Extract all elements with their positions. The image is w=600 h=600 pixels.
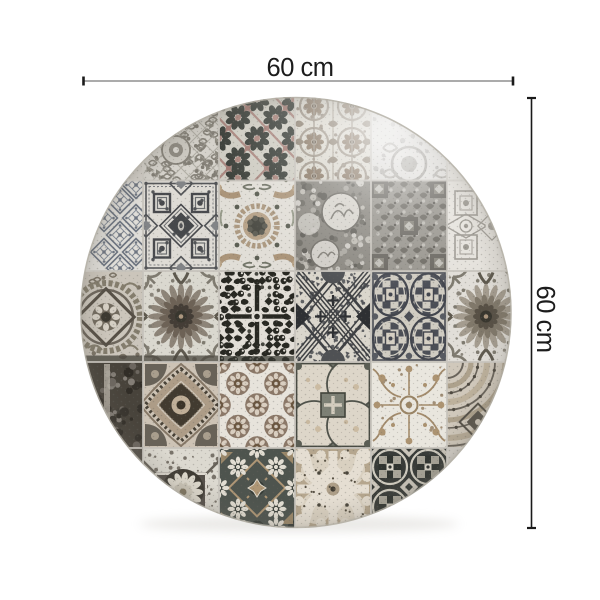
svg-text:60 cm: 60 cm — [531, 286, 559, 353]
svg-text:60 cm: 60 cm — [267, 54, 334, 82]
